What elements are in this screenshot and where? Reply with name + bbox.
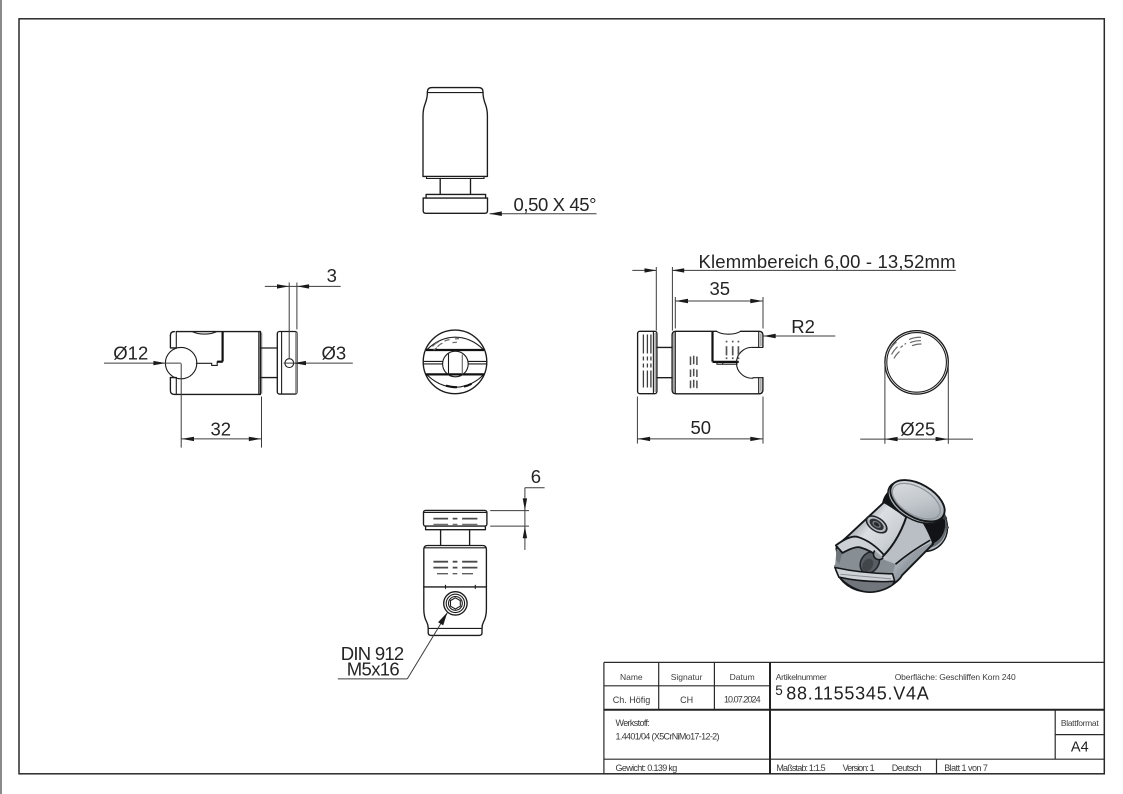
svg-text:Artikelnummer: Artikelnummer <box>776 672 827 682</box>
svg-text:Ch. Höfig: Ch. Höfig <box>613 695 651 705</box>
svg-text:32: 32 <box>211 418 232 439</box>
svg-text:Version: 1: Version: 1 <box>843 763 875 773</box>
svg-text:Werkstoff:: Werkstoff: <box>616 718 650 728</box>
svg-text:Datum: Datum <box>730 672 755 682</box>
svg-text:CH: CH <box>680 695 693 705</box>
svg-text:Ø12: Ø12 <box>113 343 148 364</box>
svg-text:10.07.2024: 10.07.2024 <box>724 695 761 705</box>
svg-text:88.1155345.V4A: 88.1155345.V4A <box>786 684 929 704</box>
svg-text:6: 6 <box>531 466 541 487</box>
svg-text:0,50 X 45°: 0,50 X 45° <box>514 194 597 215</box>
svg-text:5: 5 <box>775 683 783 698</box>
svg-text:Ø25: Ø25 <box>900 418 935 439</box>
svg-text:3: 3 <box>327 265 337 286</box>
svg-text:A4: A4 <box>1071 739 1089 755</box>
svg-text:Blatt 1 von 7: Blatt 1 von 7 <box>944 763 988 773</box>
svg-text:Klemmbereich 6,00 - 13,52mm: Klemmbereich 6,00 - 13,52mm <box>699 251 956 272</box>
svg-text:Ø3: Ø3 <box>322 343 347 364</box>
svg-text:Gewicht: 0.139 kg: Gewicht: 0.139 kg <box>616 763 678 773</box>
svg-text:Oberfläche: Geschliffen Korn: Oberfläche: Geschliffen Korn 240 <box>895 672 1016 682</box>
svg-text:Blattformat: Blattformat <box>1061 718 1099 728</box>
svg-text:Signatur: Signatur <box>671 672 703 682</box>
svg-text:50: 50 <box>691 417 712 438</box>
svg-text:1.4401/04 (X5CrNiMo17-12-2): 1.4401/04 (X5CrNiMo17-12-2) <box>616 732 720 742</box>
svg-text:35: 35 <box>710 278 731 299</box>
svg-text:Deutsch: Deutsch <box>892 763 922 773</box>
svg-text:R2: R2 <box>791 316 815 337</box>
svg-text:Maßstab: 1:1.5: Maßstab: 1:1.5 <box>776 763 825 773</box>
svg-text:M5x16: M5x16 <box>347 658 400 679</box>
svg-text:Name: Name <box>620 672 643 682</box>
